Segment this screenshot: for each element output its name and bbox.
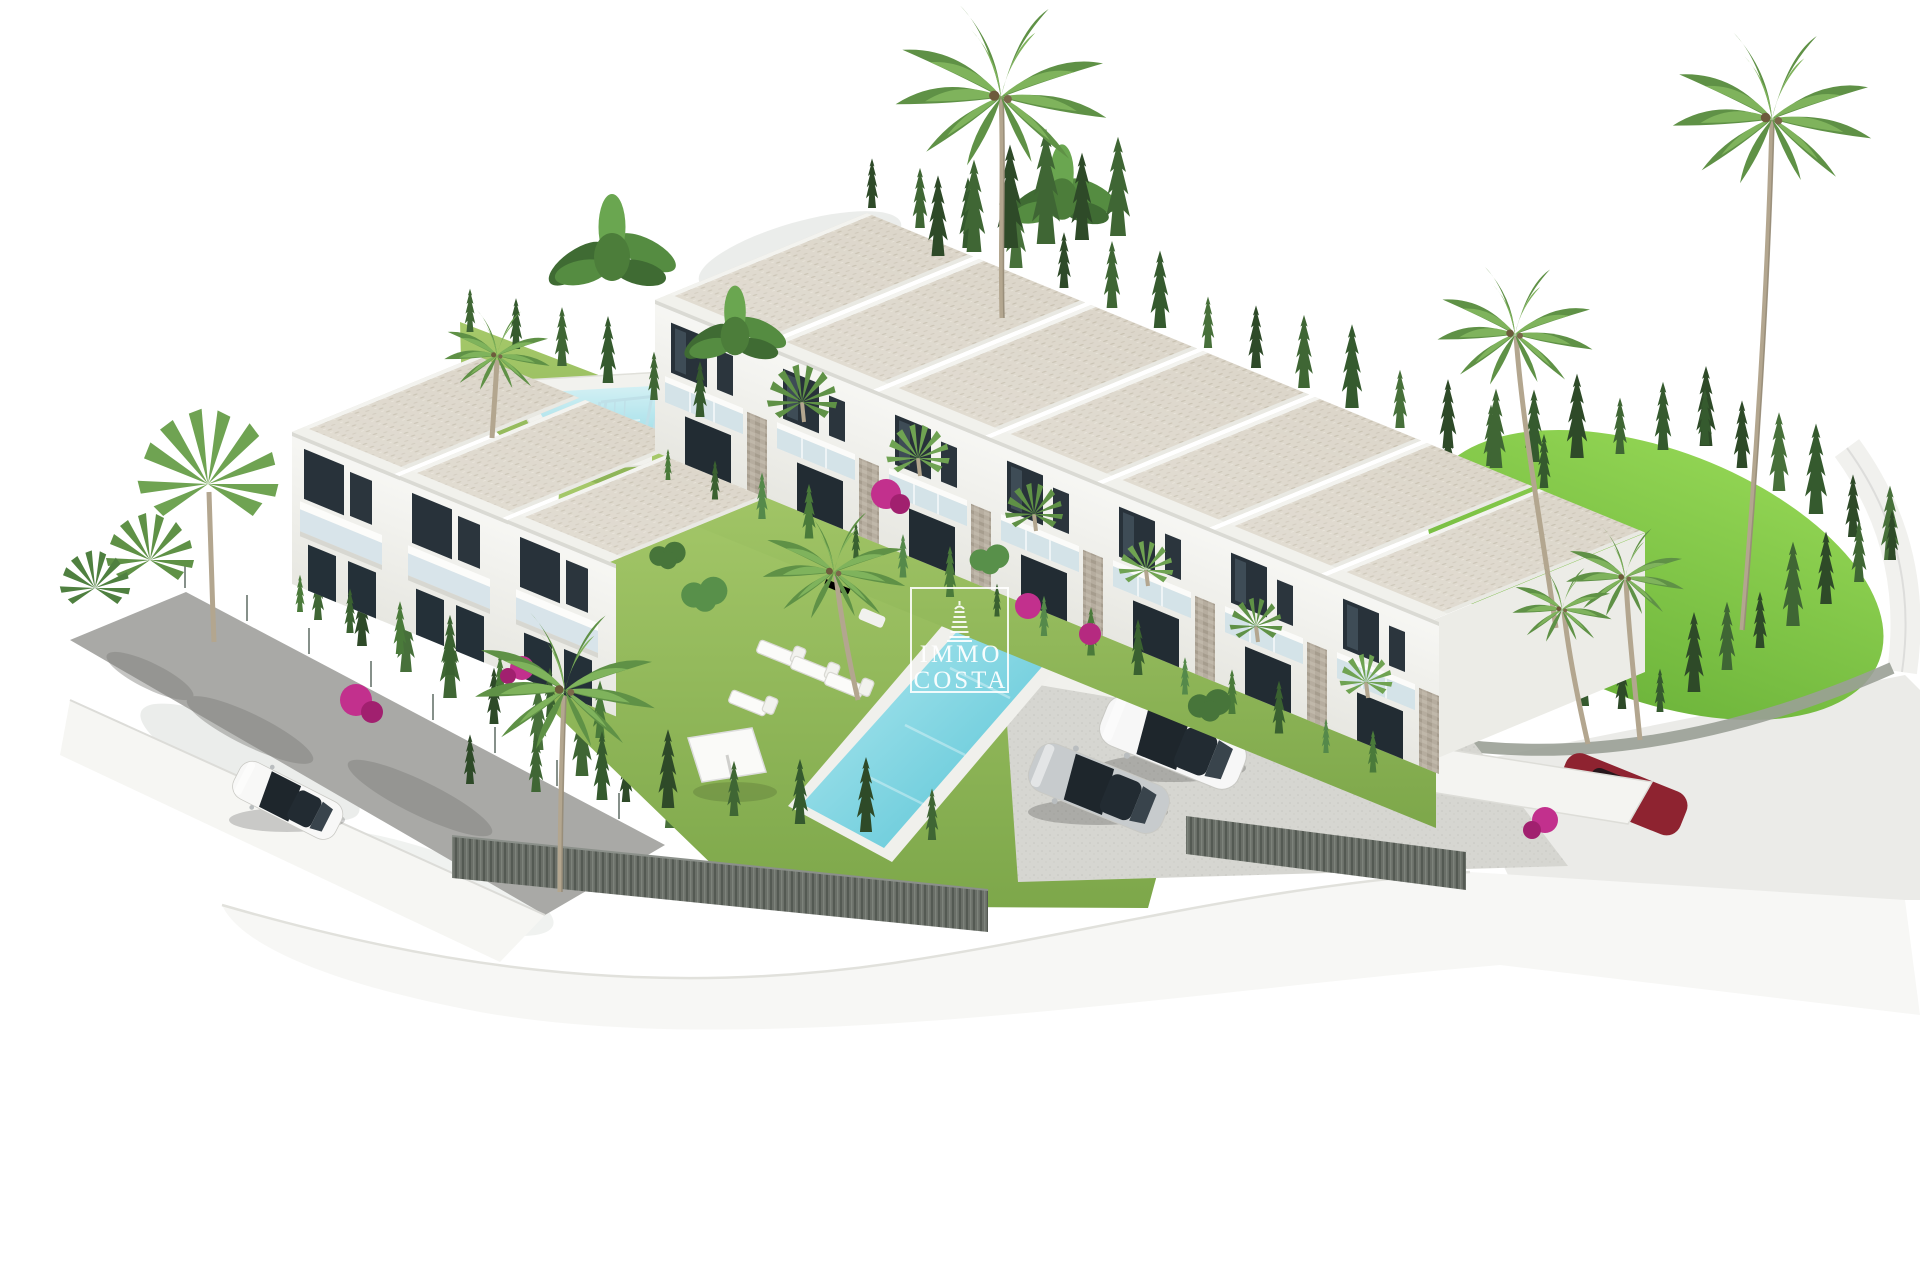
render-canvas: IMMO COSTA <box>0 0 1920 1280</box>
watermark-line1: IMMO <box>920 641 1003 668</box>
site-plan-render: IMMO COSTA <box>0 0 1920 1280</box>
watermark-line2: COSTA <box>914 667 1009 694</box>
